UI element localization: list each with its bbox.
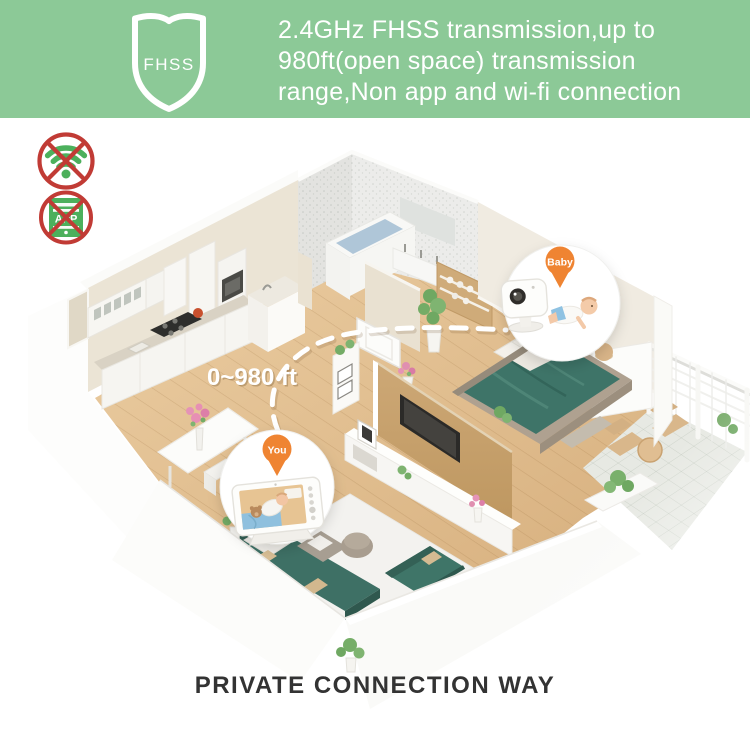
page: FHSS 2.4GHz FHSS transmission,up to 980f… <box>0 0 750 750</box>
distance-label: 0~980 ft 0~980 ft <box>207 364 299 393</box>
you-pin-label: You <box>267 445 286 457</box>
no-wifi-icon <box>34 129 98 191</box>
floorplan-scene: 0~980 ft 0~980 ft <box>0 0 750 750</box>
edge-fade <box>470 370 750 710</box>
no-app-icon: APP <box>36 189 96 247</box>
range-hood <box>164 257 186 316</box>
distance-text: 0~980 ft <box>207 364 297 391</box>
footer-title: PRIVATE CONNECTION WAY <box>0 672 750 700</box>
baby-pin-label: Baby <box>547 257 573 269</box>
kitchen-window <box>68 290 88 348</box>
cooking-pot <box>193 308 203 318</box>
monitor-illustration <box>231 477 325 547</box>
